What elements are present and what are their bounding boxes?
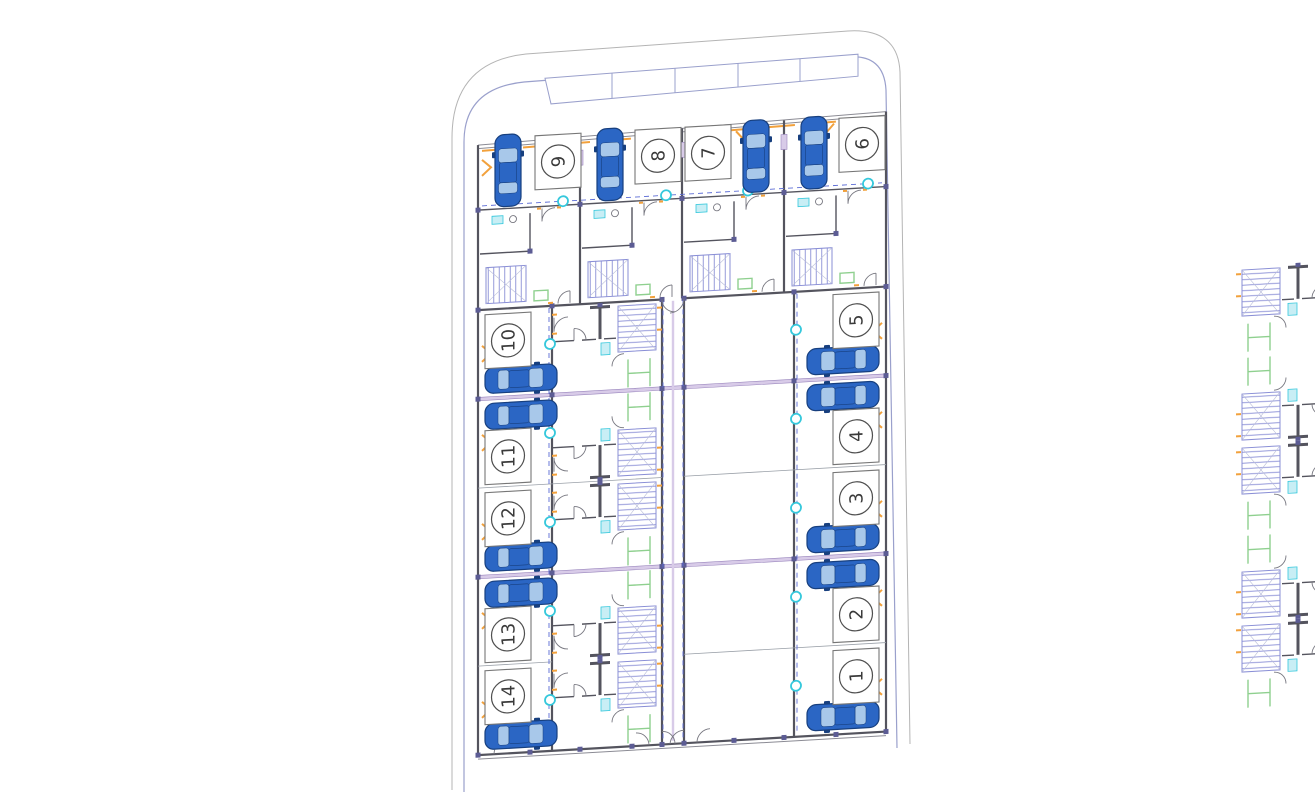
car-icon	[485, 397, 557, 433]
right-strip-houses	[1236, 260, 1315, 708]
plot-number: 11	[499, 444, 520, 468]
plot-number: 12	[499, 506, 520, 530]
plot-number: 6	[853, 138, 874, 151]
plot-marker-5: 5	[833, 292, 879, 349]
plot-number: 2	[847, 608, 868, 621]
plot-marker-14: 14	[485, 668, 531, 725]
townhouse-module	[1236, 438, 1315, 530]
townhouse-module	[786, 189, 876, 290]
plot-number: 13	[499, 622, 520, 646]
plot-number: 1	[847, 670, 868, 683]
plot-marker-13: 13	[485, 606, 531, 663]
car-icon	[740, 119, 772, 193]
street-strip	[545, 54, 858, 104]
plot-number: 10	[499, 328, 520, 352]
plot-marker-11: 11	[485, 428, 531, 485]
plot-marker-6: 6	[839, 116, 885, 173]
plot-marker-4: 4	[833, 408, 879, 465]
left-strip-houses	[552, 300, 662, 748]
plot-number: 9	[549, 155, 570, 168]
plot-number: 3	[847, 492, 868, 505]
car-icon	[798, 116, 830, 190]
townhouse-module	[1236, 530, 1315, 622]
plot-marker-10: 10	[485, 312, 531, 369]
plot-number: 7	[699, 146, 720, 159]
townhouse-module	[552, 570, 662, 662]
plot-number: 4	[847, 430, 868, 443]
plot-number: 14	[499, 684, 520, 708]
townhouse-module	[1236, 616, 1315, 708]
plot-marker-12: 12	[485, 490, 531, 547]
car-icon	[485, 575, 557, 611]
townhouse-module	[582, 201, 672, 302]
townhouse-module	[1236, 260, 1315, 352]
car-icon	[594, 128, 626, 202]
townhouse-module	[552, 300, 662, 392]
plot-marker-1: 1	[833, 648, 879, 705]
plot-marker-2: 2	[833, 586, 879, 643]
site-plan-canvas: 9 8 7 6 10 11 12 13 14	[0, 0, 1315, 802]
plot-marker-3: 3	[833, 470, 879, 527]
townhouse-module	[552, 656, 662, 748]
townhouse-module	[684, 195, 774, 296]
townhouse-module	[552, 478, 662, 570]
car-icon	[492, 133, 524, 207]
plot-marker-7: 7	[685, 125, 731, 182]
townhouse-module	[480, 207, 570, 308]
plot-marker-8: 8	[635, 127, 681, 184]
plot-number: 8	[649, 149, 670, 162]
plot-marker-9: 9	[535, 133, 581, 190]
townhouse-module	[1236, 352, 1315, 444]
plot-number: 5	[847, 314, 868, 327]
townhouse-module	[552, 392, 662, 484]
